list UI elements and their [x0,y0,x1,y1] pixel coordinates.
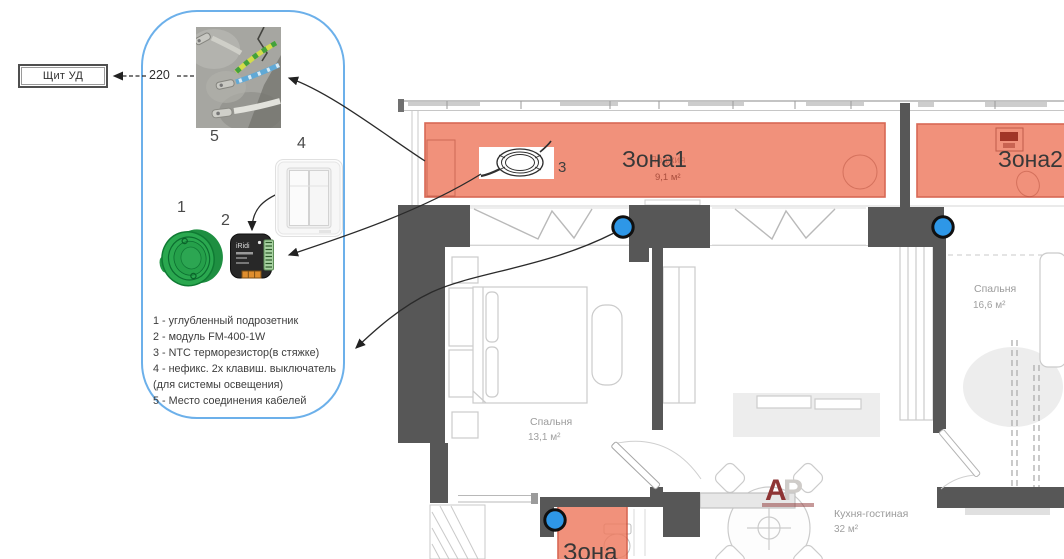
bottom-terminals [242,271,261,278]
light-switch [275,159,343,237]
relay-module: iRidi [230,233,276,279]
item-number-5: 5 [210,128,219,146]
legend: 1 - углубленный подрозетник 2 - модуль F… [153,313,345,409]
legend-line-2: 2 - модуль FM-400-1W [153,329,345,345]
item-number-1: 1 [177,199,186,217]
legend-line-1: 1 - углубленный подрозетник [153,313,345,329]
switch-rocker-left [290,171,309,226]
arrow-plan-to-photo [289,78,425,161]
item-number-2: 2 [221,212,230,230]
legend-line-4: 4 - нефикс. 2х клавиш. выключатель [153,361,345,377]
wiring-floorplan-diagram: Лоджия 9,1 м² Зона1 Зона2 Зона 3 Спальня… [0,0,1064,559]
voltage-label: 220 [149,68,170,82]
terminal-strip [264,240,274,270]
arrow-marker-to-legend [356,233,614,348]
legend-line-6: 5 - Место соединения кабелей [153,393,345,409]
switch-rocker-right [310,171,329,226]
crimp-lug-bottom [212,108,233,118]
legend-line-3: 3 - NTC терморезистор(в стяжке) [153,345,345,361]
board-label: Щит УД [43,70,83,82]
cable-joint-photo [196,27,281,128]
mounting-box [158,226,224,290]
legend-line-5: (для системы освещения) [153,377,345,393]
item-number-4: 4 [297,135,306,153]
module-brand-label: iRidi [236,243,250,250]
electrical-board-box: Щит УД [18,64,108,88]
